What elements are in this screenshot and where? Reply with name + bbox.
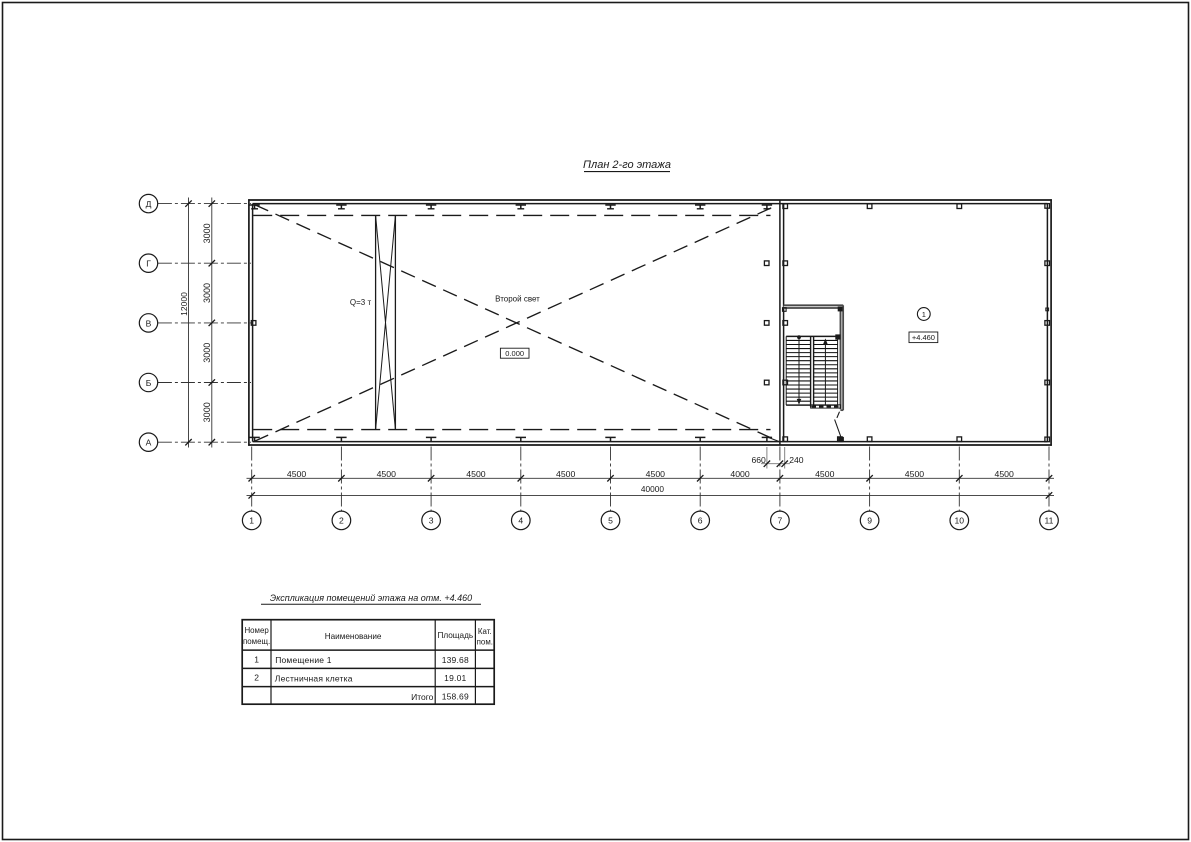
svg-text:0.000: 0.000: [505, 349, 524, 358]
svg-text:660: 660: [751, 455, 766, 465]
svg-text:3000: 3000: [202, 402, 212, 422]
svg-text:4000: 4000: [730, 469, 749, 479]
svg-text:5: 5: [608, 516, 613, 526]
svg-text:158.69: 158.69: [442, 692, 469, 702]
svg-text:2: 2: [339, 516, 344, 526]
svg-text:3: 3: [429, 516, 434, 526]
svg-text:1: 1: [254, 654, 259, 664]
svg-text:3000: 3000: [202, 343, 212, 363]
svg-text:Кат.: Кат.: [478, 627, 492, 636]
svg-text:40000: 40000: [641, 484, 664, 494]
svg-text:3000: 3000: [202, 283, 212, 303]
svg-text:Наименование: Наименование: [325, 632, 382, 641]
svg-text:Помещение 1: Помещение 1: [275, 655, 332, 665]
svg-text:А: А: [146, 438, 152, 448]
svg-text:Второй свет: Второй свет: [495, 295, 540, 304]
svg-text:План 2-го этажа: План 2-го этажа: [583, 159, 671, 171]
svg-text:11: 11: [1045, 516, 1054, 526]
svg-text:4: 4: [518, 516, 523, 526]
svg-text:Экспликация помещений этажа на: Экспликация помещений этажа на отм. +4.4…: [270, 593, 472, 603]
svg-text:12000: 12000: [179, 292, 189, 316]
svg-text:4500: 4500: [377, 469, 396, 479]
svg-text:4500: 4500: [646, 469, 665, 479]
svg-text:4500: 4500: [556, 469, 575, 479]
svg-text:Итого: Итого: [411, 692, 434, 702]
svg-text:+4.460: +4.460: [912, 333, 935, 342]
svg-text:19.01: 19.01: [444, 673, 466, 683]
svg-text:Б: Б: [146, 378, 152, 388]
svg-text:4500: 4500: [287, 469, 306, 479]
svg-text:9: 9: [867, 516, 872, 526]
svg-text:1: 1: [922, 310, 926, 319]
svg-text:240: 240: [789, 455, 804, 465]
svg-text:Г: Г: [146, 259, 151, 269]
svg-text:4500: 4500: [994, 469, 1013, 479]
svg-text:4500: 4500: [466, 469, 485, 479]
svg-text:139.68: 139.68: [442, 655, 469, 665]
svg-text:7: 7: [778, 516, 783, 526]
svg-text:В: В: [146, 318, 152, 328]
svg-text:Q=3 т: Q=3 т: [350, 298, 372, 307]
svg-text:2: 2: [254, 673, 259, 683]
svg-text:10: 10: [955, 516, 965, 526]
svg-text:1: 1: [249, 516, 254, 526]
svg-text:Лестничная клетка: Лестничная клетка: [275, 673, 353, 683]
svg-text:Номер: Номер: [244, 626, 269, 635]
svg-text:помещ.: помещ.: [243, 637, 270, 646]
svg-text:3000: 3000: [202, 223, 212, 243]
svg-text:Площадь: Площадь: [437, 631, 473, 640]
svg-text:пом.: пом.: [477, 637, 493, 646]
svg-text:6: 6: [698, 516, 703, 526]
svg-text:Д: Д: [146, 199, 152, 209]
svg-text:4500: 4500: [815, 469, 834, 479]
svg-text:4500: 4500: [905, 469, 924, 479]
